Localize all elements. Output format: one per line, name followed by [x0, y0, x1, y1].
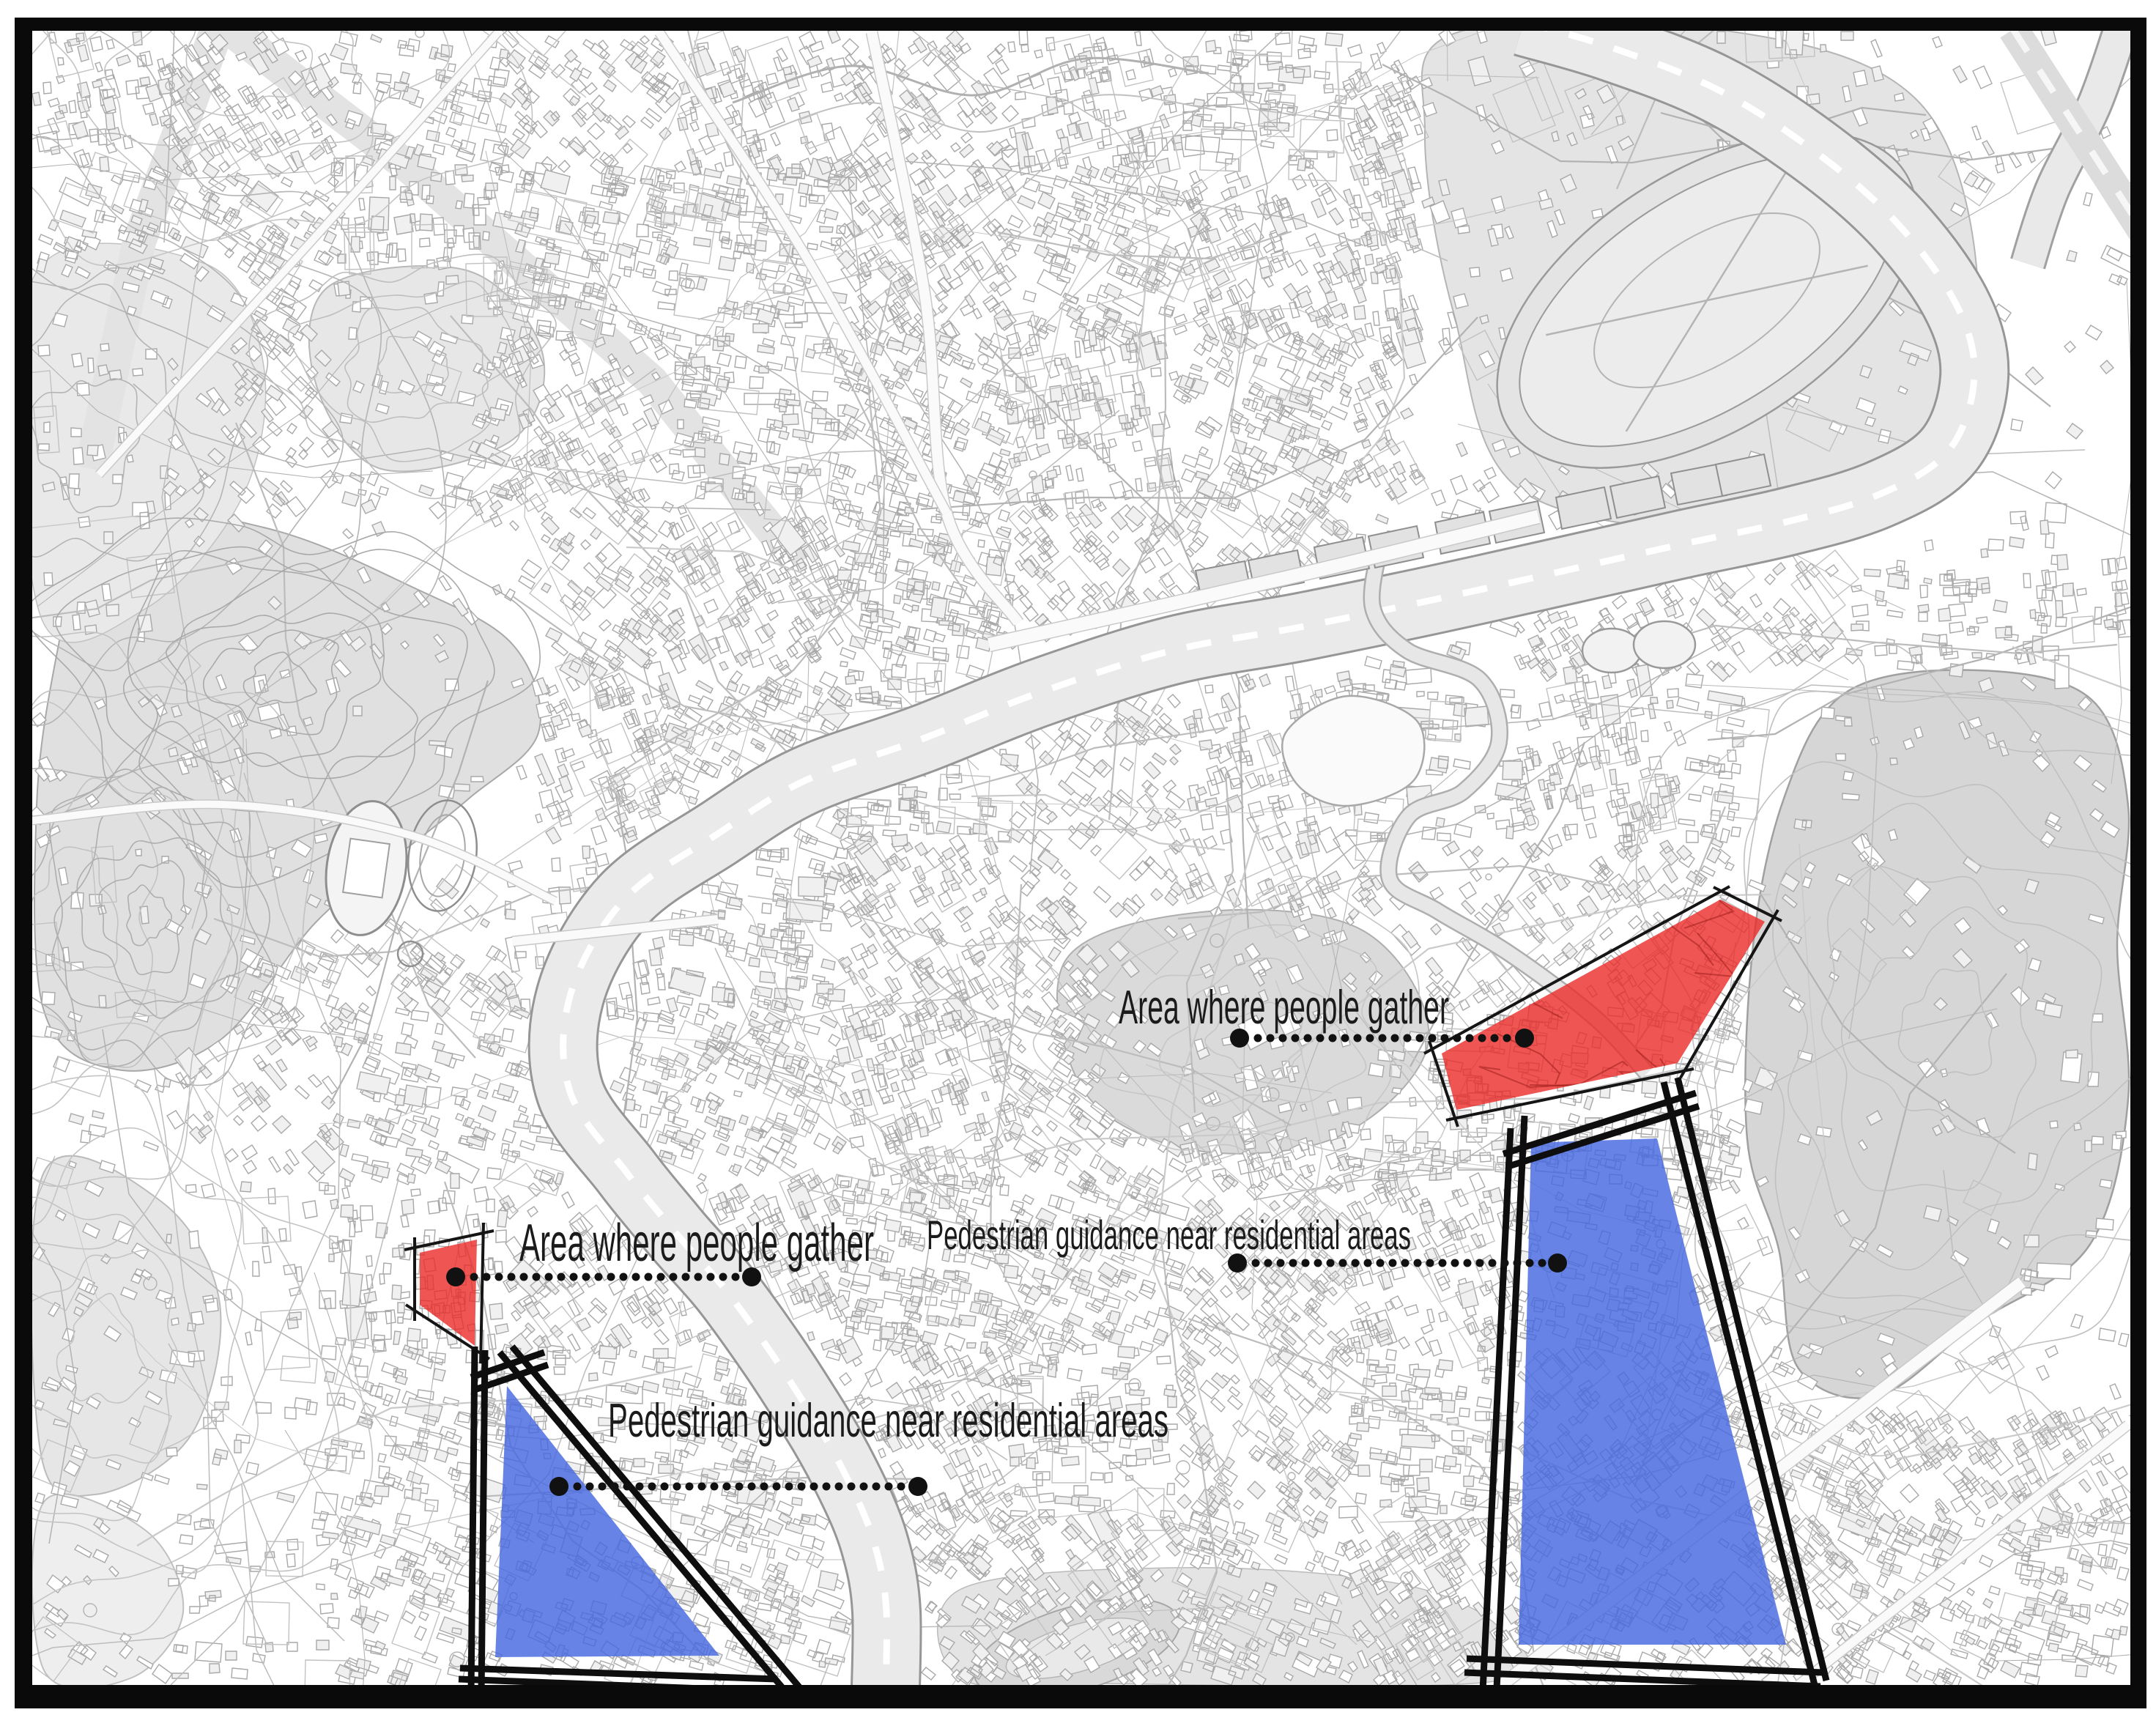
- svg-text:Pedestrian guidance near resid: Pedestrian guidance near residential are…: [927, 1212, 1411, 1258]
- svg-text:Pedestrian guidance near resid: Pedestrian guidance near residential are…: [608, 1393, 1168, 1447]
- svg-text:Area where people gather: Area where people gather: [519, 1214, 874, 1273]
- svg-text:Area where people gather: Area where people gather: [1119, 980, 1449, 1034]
